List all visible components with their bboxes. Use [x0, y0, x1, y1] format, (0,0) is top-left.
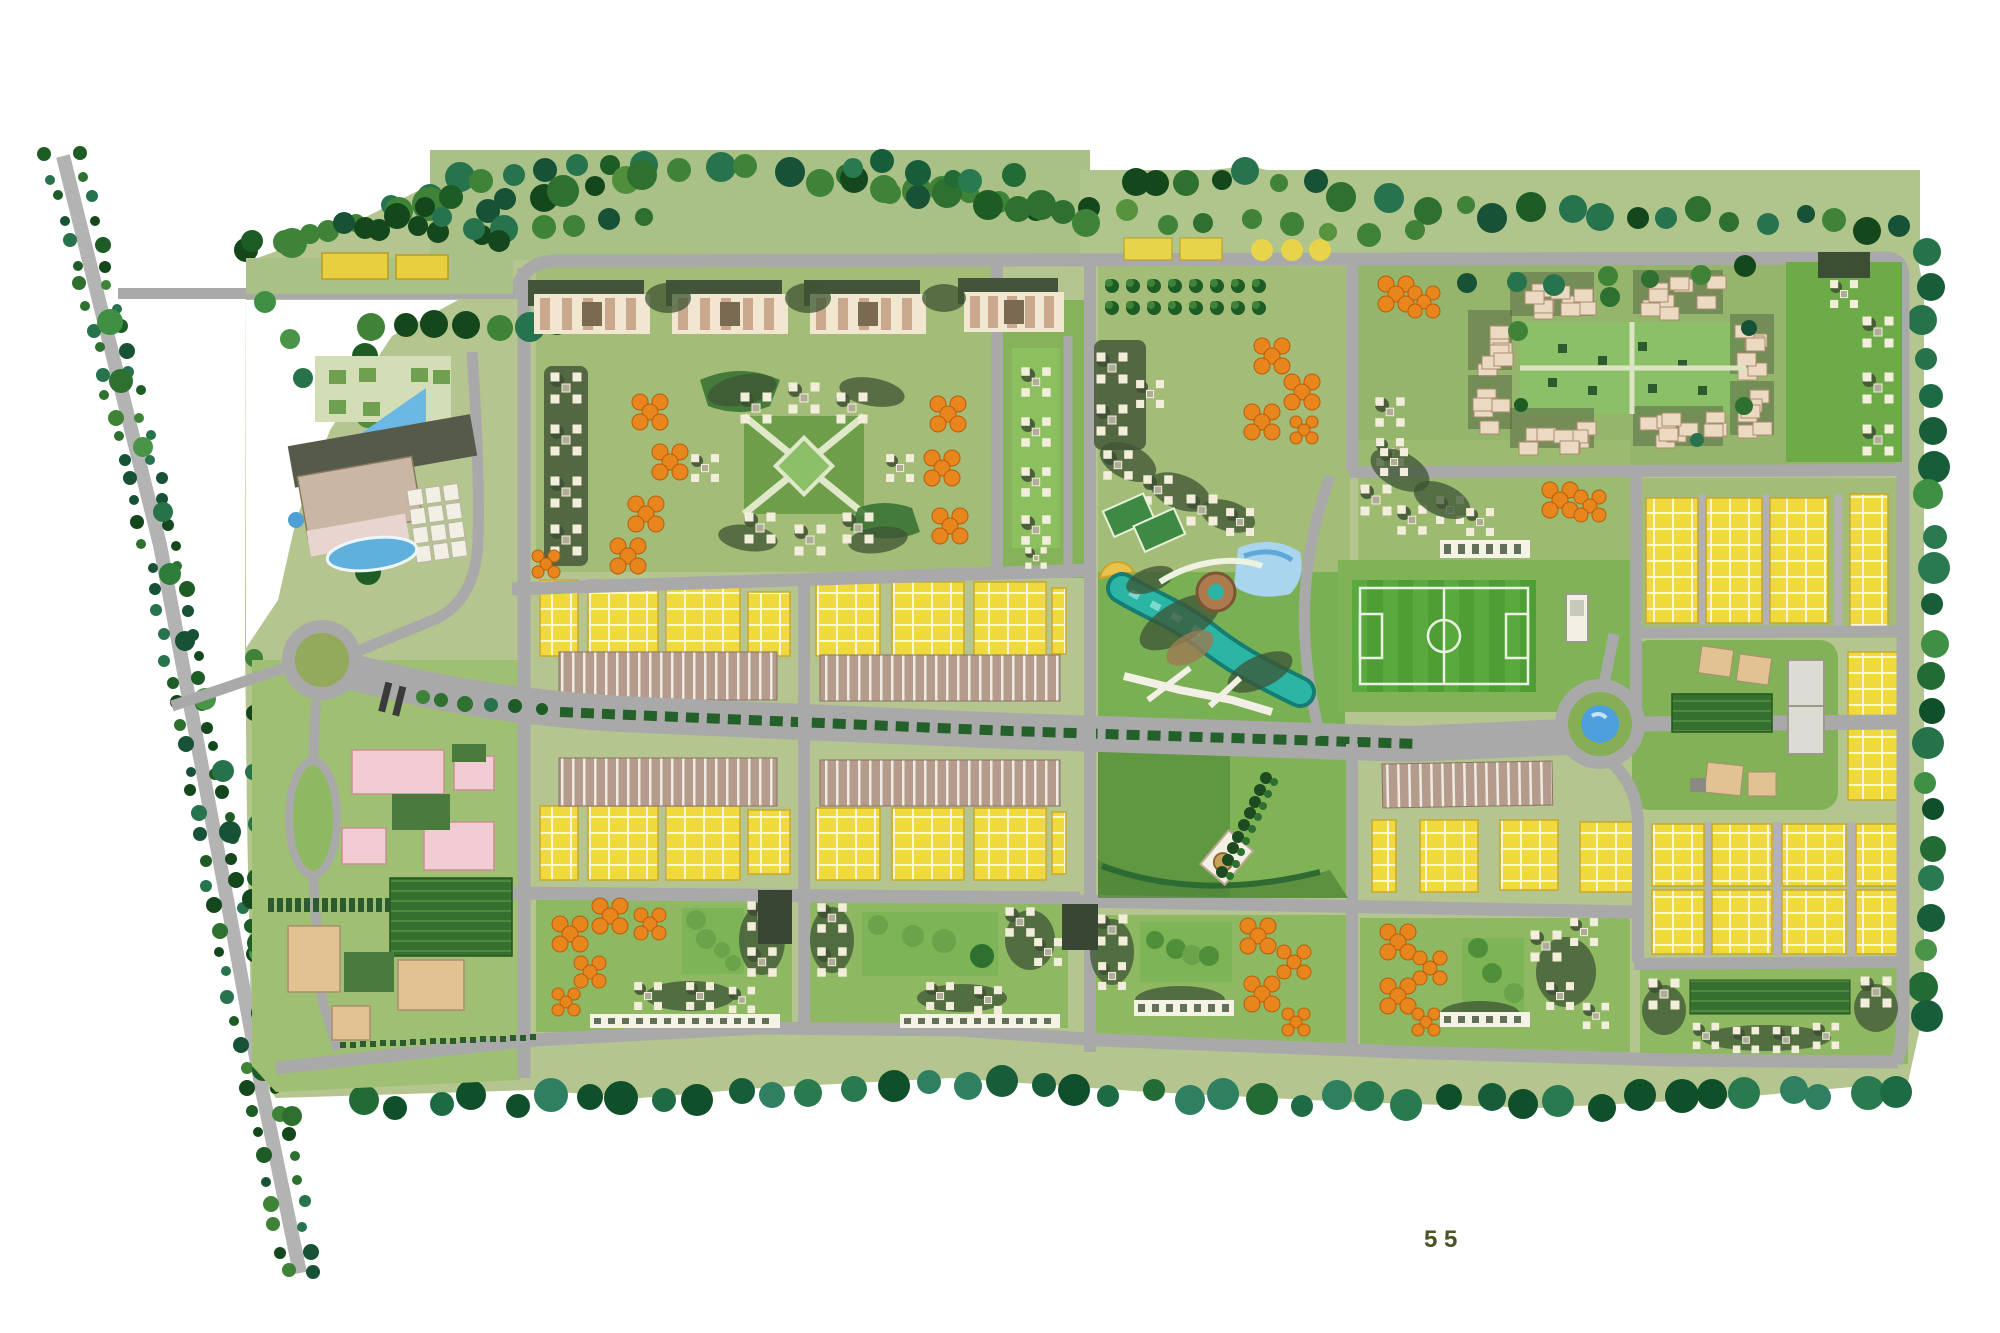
- svg-text:5 5: 5 5: [1424, 1226, 1457, 1253]
